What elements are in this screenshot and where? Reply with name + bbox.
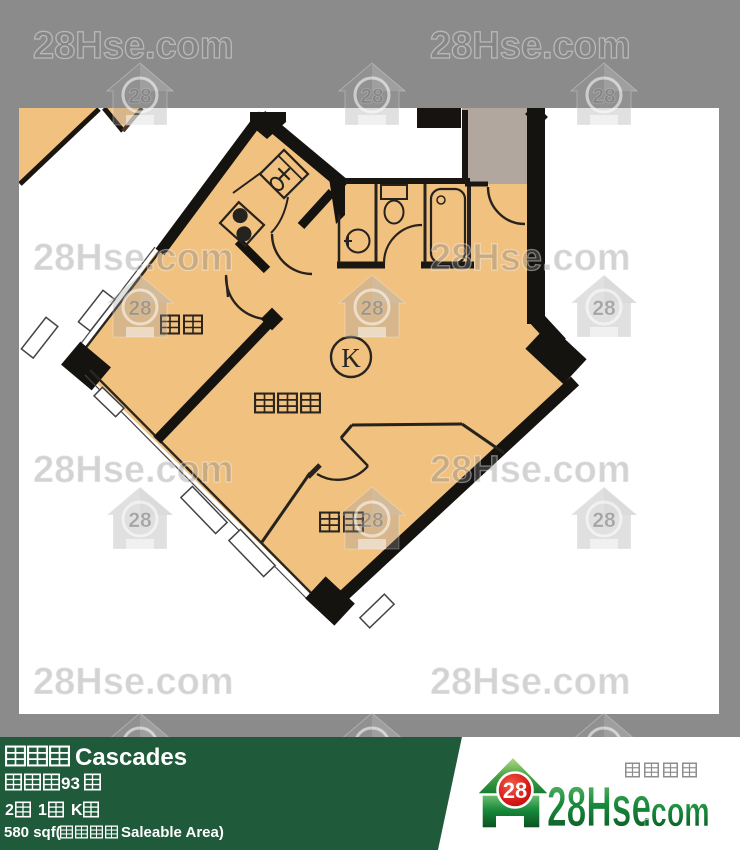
svg-text:K: K (341, 343, 361, 373)
svg-text:Cascades: Cascades (75, 744, 187, 771)
svg-text:.com: .com (643, 787, 710, 835)
svg-text:2: 2 (5, 802, 14, 819)
svg-text:K: K (71, 802, 83, 819)
svg-text:28Hse: 28Hse (547, 776, 651, 840)
svg-text:Saleable Area): Saleable Area) (121, 824, 224, 841)
svg-text:580 sqf(: 580 sqf( (4, 824, 61, 841)
svg-text:93: 93 (61, 774, 80, 793)
svg-text:28: 28 (503, 778, 527, 803)
svg-text:1: 1 (38, 802, 47, 819)
